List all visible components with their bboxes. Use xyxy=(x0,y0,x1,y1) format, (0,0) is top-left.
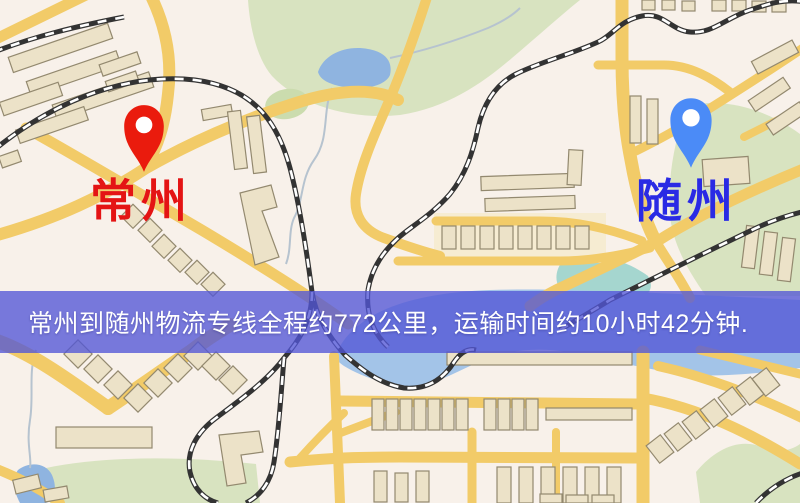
map-screenshot: 常州 随州 常州到随州物流专线全程约772公里，运输时间约10小时42分钟. xyxy=(0,0,800,503)
destination-pin-icon xyxy=(667,95,715,171)
destination-city-label: 随州 xyxy=(636,179,738,225)
origin-pin-icon xyxy=(121,102,167,175)
map-canvas xyxy=(0,0,800,503)
route-info-text: 常州到随州物流专线全程约772公里，运输时间约10小时42分钟. xyxy=(28,304,748,340)
origin-city-label: 常州 xyxy=(90,179,192,225)
route-info-banner: 常州到随州物流专线全程约772公里，运输时间约10小时42分钟. xyxy=(0,291,800,353)
